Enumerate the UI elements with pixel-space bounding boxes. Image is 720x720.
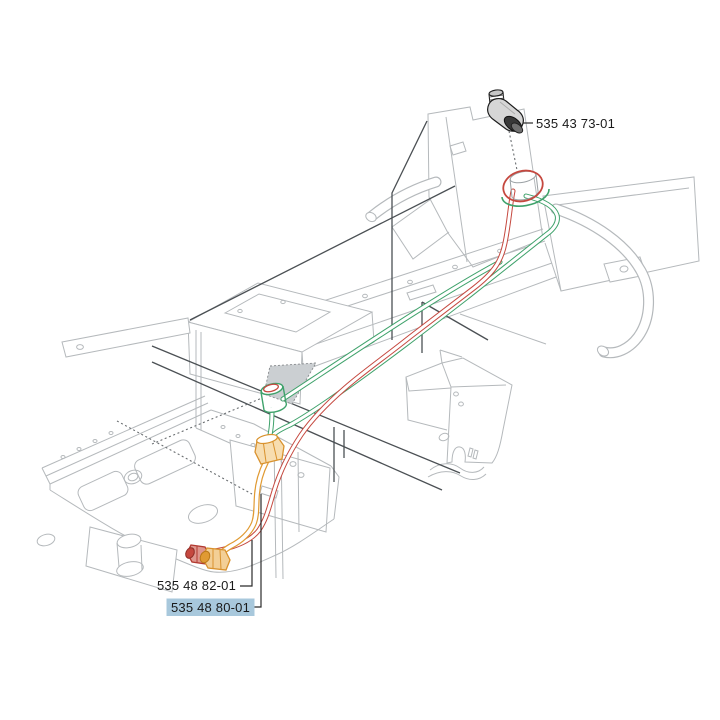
part-label-535488001-selected[interactable]: 535 48 80-01 — [171, 600, 250, 615]
parts-diagram-page: 535 43 73-01 535 48 82-01 535 48 80-01 — [0, 0, 720, 720]
diagram-background — [0, 0, 720, 720]
parts-diagram-canvas: 535 43 73-01 535 48 82-01 535 48 80-01 — [0, 0, 720, 720]
part-label-535488201[interactable]: 535 48 82-01 — [157, 578, 236, 593]
part-label-535437301[interactable]: 535 43 73-01 — [536, 116, 615, 131]
